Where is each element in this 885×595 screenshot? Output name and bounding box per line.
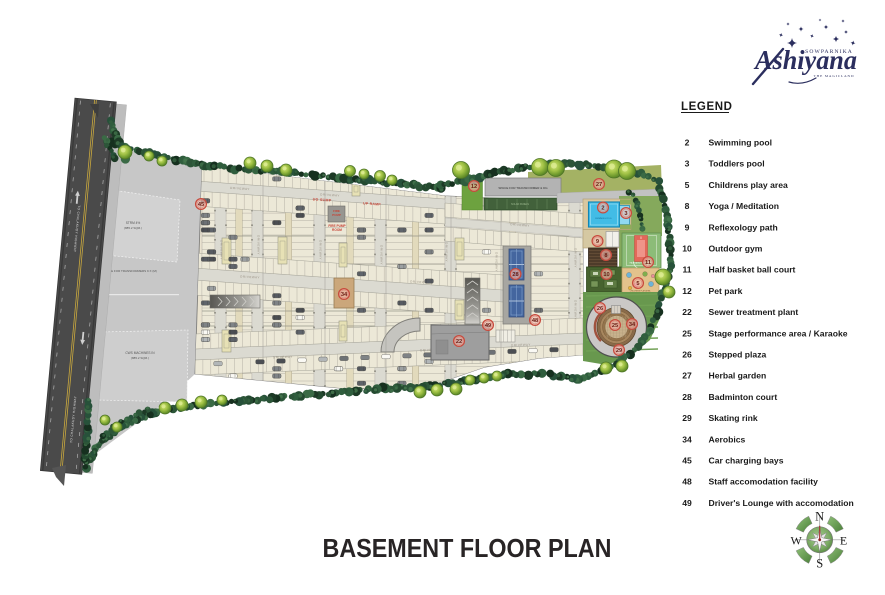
svg-text:5: 5 xyxy=(685,180,690,190)
svg-text:22: 22 xyxy=(682,307,692,317)
svg-text:45: 45 xyxy=(198,202,204,208)
svg-text:Car charging bays: Car charging bays xyxy=(709,456,784,466)
svg-text:48: 48 xyxy=(682,477,692,487)
svg-text:9: 9 xyxy=(596,239,599,245)
svg-text:29: 29 xyxy=(616,348,622,354)
svg-text:Stage performance area / Karao: Stage performance area / Karaoke xyxy=(709,328,848,338)
svg-text:N: N xyxy=(815,509,824,523)
svg-text:27: 27 xyxy=(596,182,602,188)
svg-text:Sewer treatment plant: Sewer treatment plant xyxy=(709,307,799,317)
svg-text:48: 48 xyxy=(532,318,538,324)
svg-text:34: 34 xyxy=(682,434,692,444)
svg-text:12: 12 xyxy=(682,286,692,296)
svg-text:12: 12 xyxy=(471,184,477,190)
svg-text:2: 2 xyxy=(601,206,604,212)
svg-text:28: 28 xyxy=(682,392,692,402)
svg-text:E: E xyxy=(840,533,847,547)
svg-text:SWIMMING POOL: SWIMMING POOL xyxy=(595,218,613,220)
svg-text:11: 11 xyxy=(682,265,691,275)
svg-text:27: 27 xyxy=(682,371,692,381)
svg-text:Childrens play area: Childrens play area xyxy=(709,180,789,190)
svg-text:THE MAGICLAND: THE MAGICLAND xyxy=(814,74,855,78)
svg-text:49: 49 xyxy=(682,498,692,508)
svg-text:Badminton court: Badminton court xyxy=(709,392,778,402)
svg-text:Driver's Lounge with accomodat: Driver's Lounge with accomodation xyxy=(709,498,854,508)
svg-text:8: 8 xyxy=(604,253,607,259)
svg-text:SPACE FOR TRANSFORMER & DG: SPACE FOR TRANSFORMER & DG xyxy=(498,186,548,190)
svg-text:22: 22 xyxy=(456,339,462,345)
svg-text:Aerobics: Aerobics xyxy=(709,434,746,444)
svg-text:9: 9 xyxy=(685,222,690,232)
svg-text:S: S xyxy=(816,556,823,570)
svg-text:49: 49 xyxy=(485,323,491,329)
svg-text:26: 26 xyxy=(597,306,603,312)
svg-text:8: 8 xyxy=(685,201,690,211)
svg-text:34: 34 xyxy=(629,322,636,328)
svg-text:SOLAR PANELS: SOLAR PANELS xyxy=(511,203,529,206)
svg-text:29: 29 xyxy=(682,413,692,423)
svg-text:25: 25 xyxy=(682,328,692,338)
svg-text:Reflexology path: Reflexology path xyxy=(709,222,778,232)
svg-text:LEGEND: LEGEND xyxy=(681,101,733,113)
svg-text:CWS MACHINES IN: CWS MACHINES IN xyxy=(125,351,155,355)
svg-text:Yoga / Meditation: Yoga / Meditation xyxy=(709,201,780,211)
svg-text:(885.2 SQM.): (885.2 SQM.) xyxy=(124,226,142,230)
svg-text:5: 5 xyxy=(636,281,639,287)
svg-text:Swimming pool: Swimming pool xyxy=(709,138,773,148)
svg-text:45: 45 xyxy=(682,456,692,466)
svg-text:(885.2 SQM.): (885.2 SQM.) xyxy=(131,356,149,360)
svg-text:10: 10 xyxy=(603,272,609,278)
svg-text:Pet park: Pet park xyxy=(709,286,743,296)
svg-text:STRM 4%: STRM 4% xyxy=(126,221,141,225)
svg-text:Half basket ball court: Half basket ball court xyxy=(709,265,796,275)
svg-text:Herbal garden: Herbal garden xyxy=(709,371,767,381)
svg-text:BASEMENT FLOOR PLAN: BASEMENT FLOOR PLAN xyxy=(323,535,612,563)
svg-text:Toddlers pool: Toddlers pool xyxy=(709,159,765,169)
svg-text:W: W xyxy=(791,533,803,547)
svg-text:Stepped plaza: Stepped plaza xyxy=(709,350,767,360)
svg-text:2: 2 xyxy=(685,138,690,148)
svg-text:11: 11 xyxy=(645,260,651,266)
svg-text:34: 34 xyxy=(341,292,348,298)
svg-text:Skating rink: Skating rink xyxy=(709,413,758,423)
svg-text:Outdoor gym: Outdoor gym xyxy=(709,244,763,254)
svg-text:3: 3 xyxy=(685,159,690,169)
svg-text:26: 26 xyxy=(682,350,692,360)
svg-text:28: 28 xyxy=(512,272,518,278)
svg-text:Ashiyana: Ashiyana xyxy=(753,45,857,75)
svg-text:25: 25 xyxy=(612,323,618,329)
svg-text:10: 10 xyxy=(682,244,692,254)
svg-text:Staff accomodation facility: Staff accomodation facility xyxy=(709,477,819,487)
svg-text:3: 3 xyxy=(624,211,627,217)
